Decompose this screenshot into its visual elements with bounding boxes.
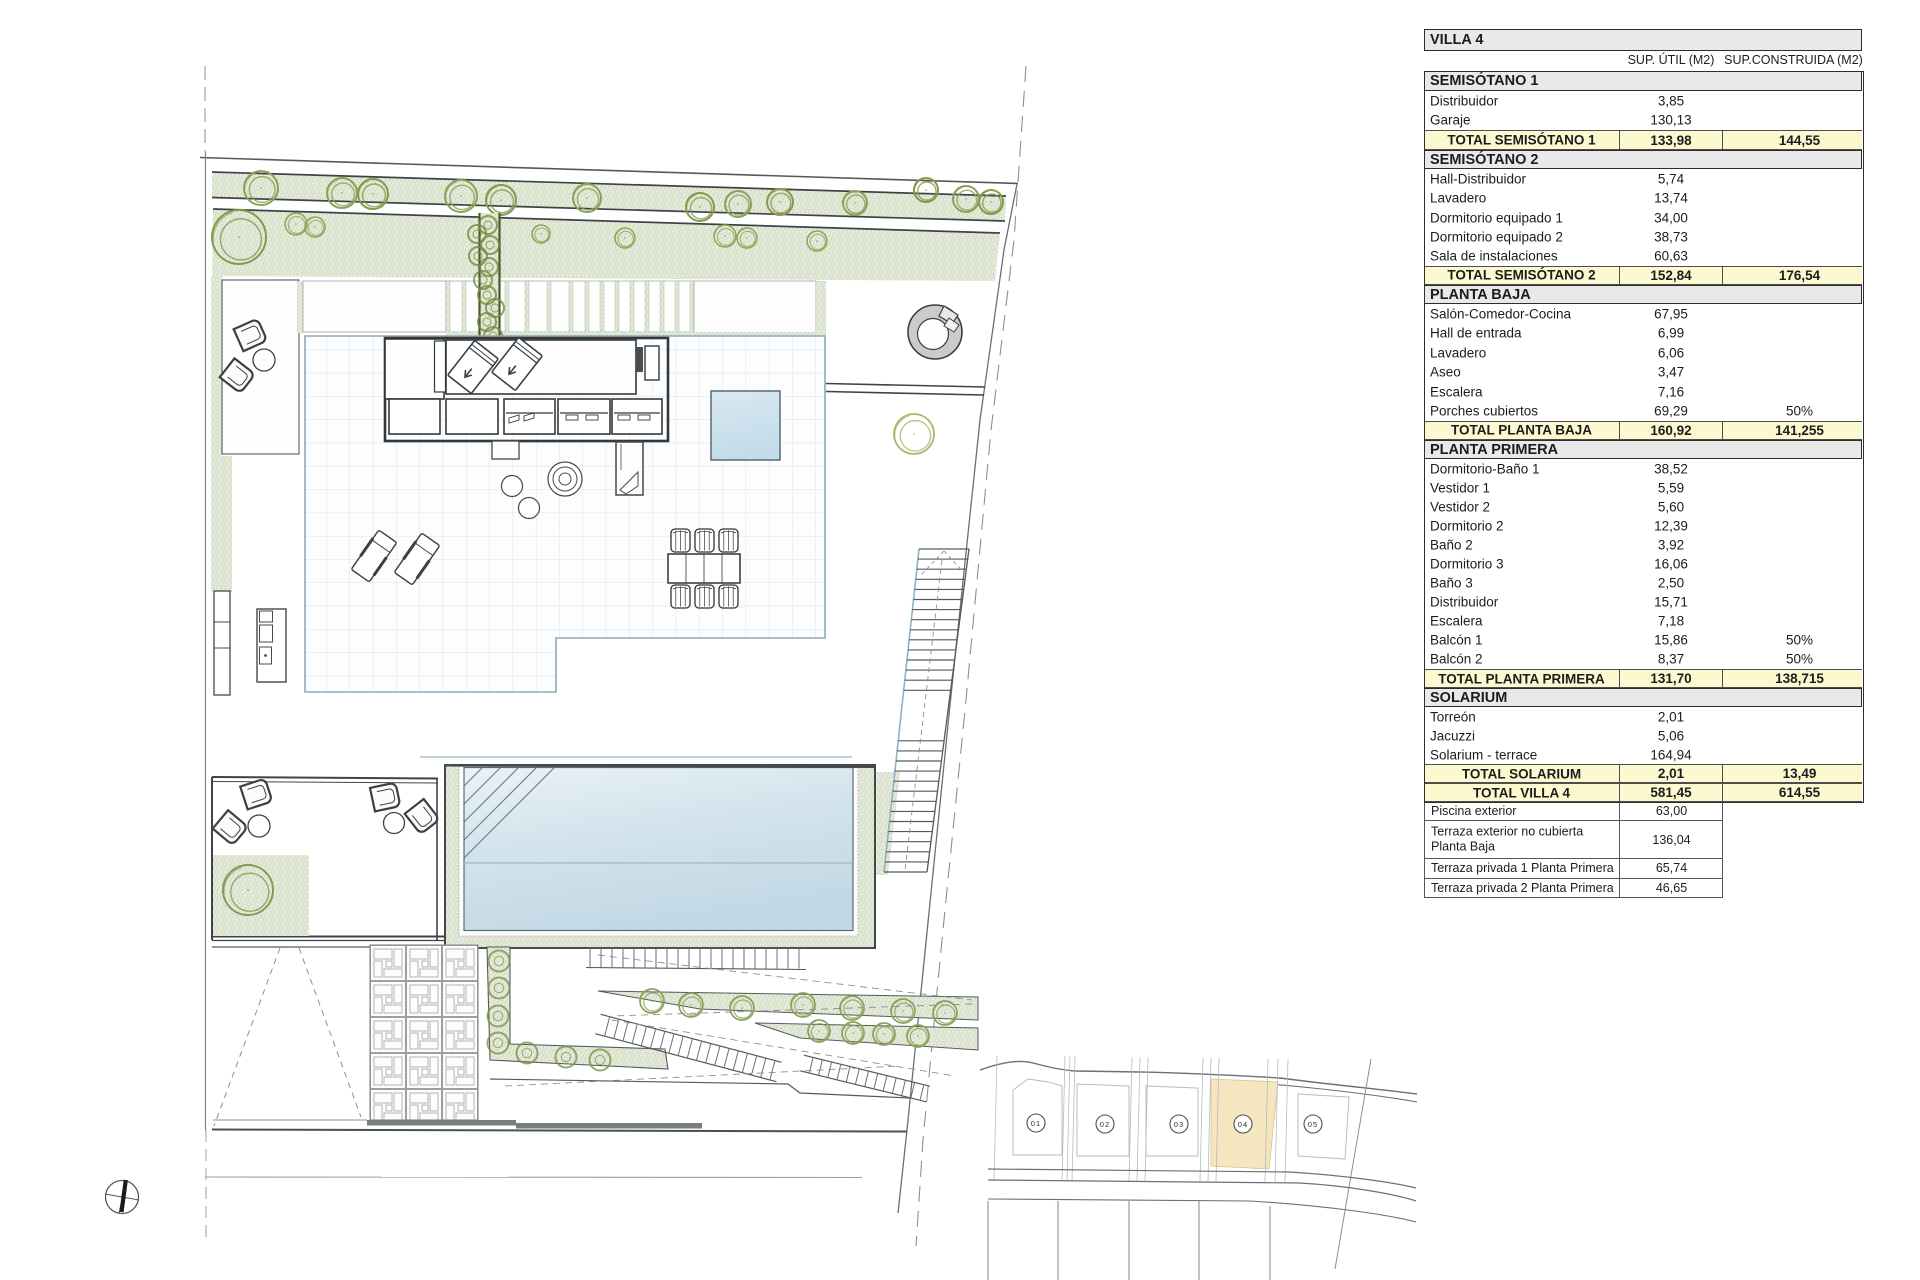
svg-text:01: 01	[1031, 1119, 1042, 1128]
svg-text:05: 05	[1308, 1120, 1319, 1129]
svg-text:03: 03	[1174, 1120, 1185, 1129]
svg-text:02: 02	[1100, 1120, 1111, 1129]
svg-text:04: 04	[1238, 1120, 1249, 1129]
